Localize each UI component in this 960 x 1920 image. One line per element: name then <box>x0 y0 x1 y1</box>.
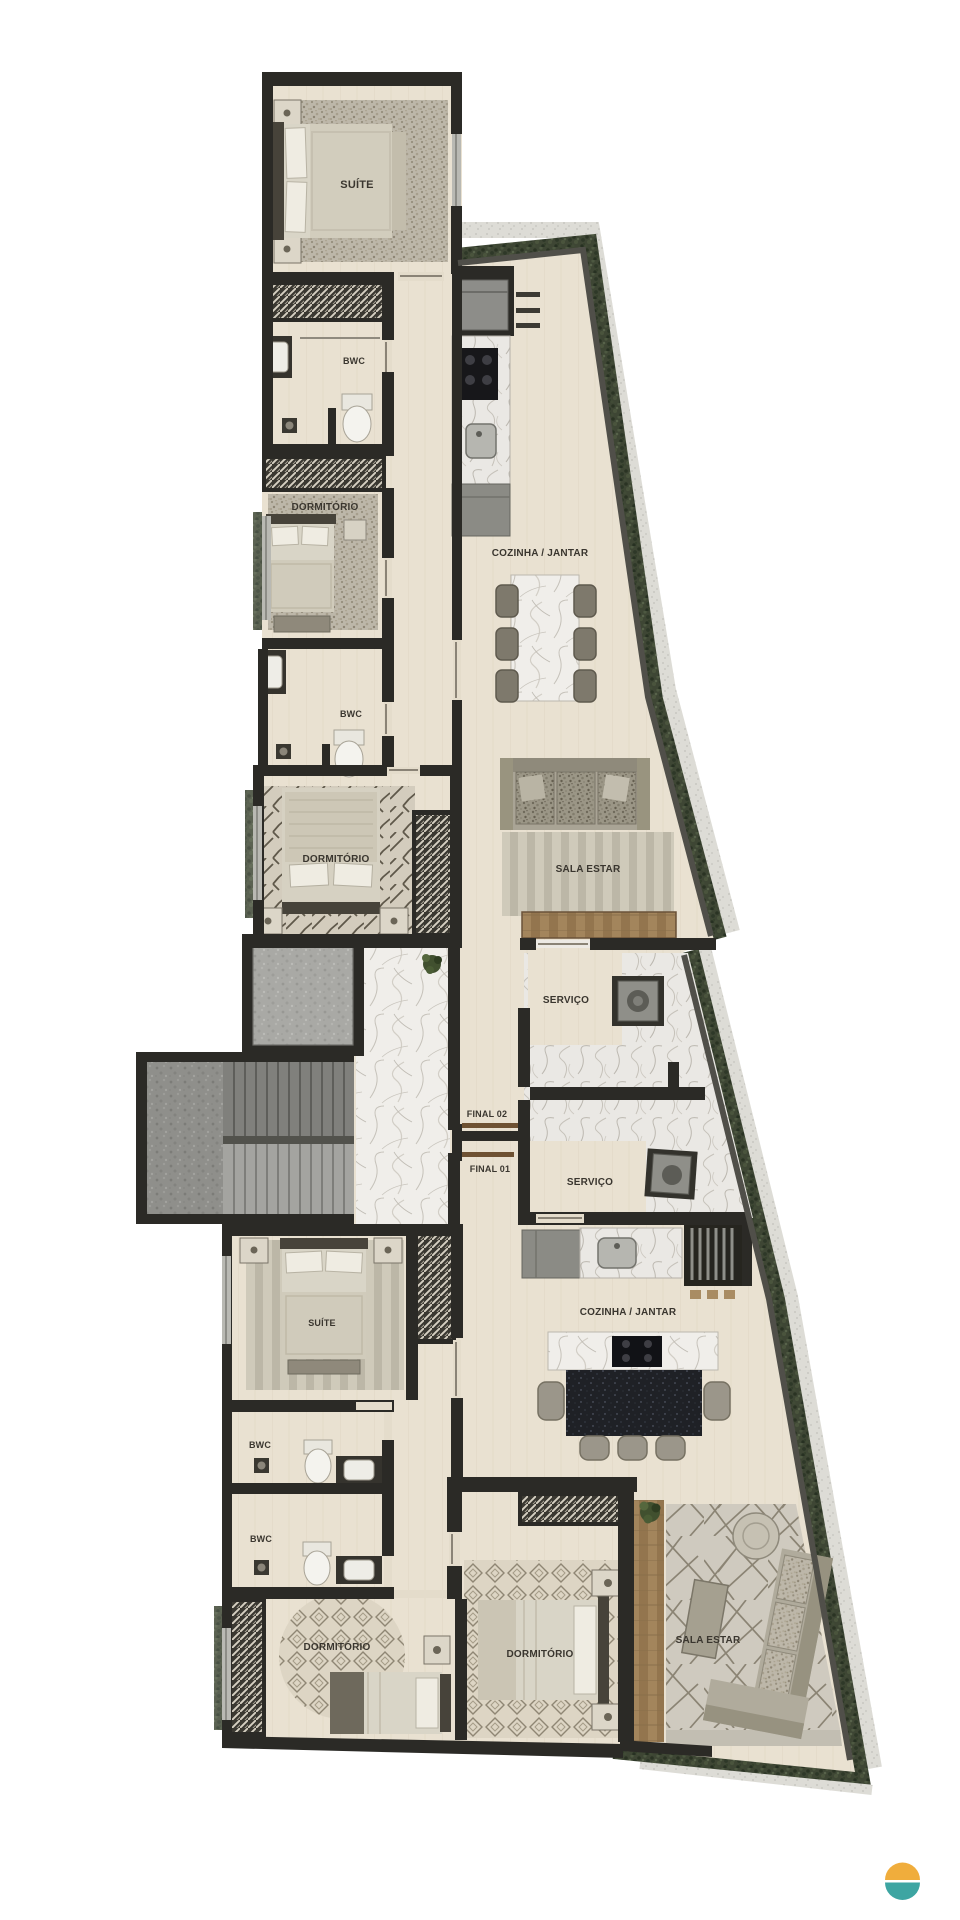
svg-text:DORMITÓRIO: DORMITÓRIO <box>507 1647 574 1660</box>
svg-text:SERVIÇO: SERVIÇO <box>567 1177 613 1188</box>
svg-text:BWC: BWC <box>343 356 365 366</box>
svg-text:FINAL 01: FINAL 01 <box>470 1164 510 1174</box>
svg-text:BWC: BWC <box>340 709 362 719</box>
svg-text:SUÍTE: SUÍTE <box>340 178 373 191</box>
svg-text:DORMITÓRIO: DORMITÓRIO <box>303 852 370 865</box>
svg-text:COZINHA / JANTAR: COZINHA / JANTAR <box>492 548 589 559</box>
svg-text:SERVIÇO: SERVIÇO <box>543 995 589 1006</box>
svg-text:FINAL 02: FINAL 02 <box>467 1109 507 1119</box>
svg-text:DORMITÓRIO: DORMITÓRIO <box>292 500 359 513</box>
svg-text:SUÍTE: SUÍTE <box>308 1318 336 1328</box>
svg-text:SALA ESTAR: SALA ESTAR <box>676 1635 741 1646</box>
svg-text:BWC: BWC <box>249 1440 271 1450</box>
svg-text:DORMITÓRIO: DORMITÓRIO <box>304 1640 371 1653</box>
svg-text:COZINHA / JANTAR: COZINHA / JANTAR <box>580 1307 677 1318</box>
svg-text:SALA ESTAR: SALA ESTAR <box>556 864 621 875</box>
svg-text:BWC: BWC <box>250 1534 272 1544</box>
